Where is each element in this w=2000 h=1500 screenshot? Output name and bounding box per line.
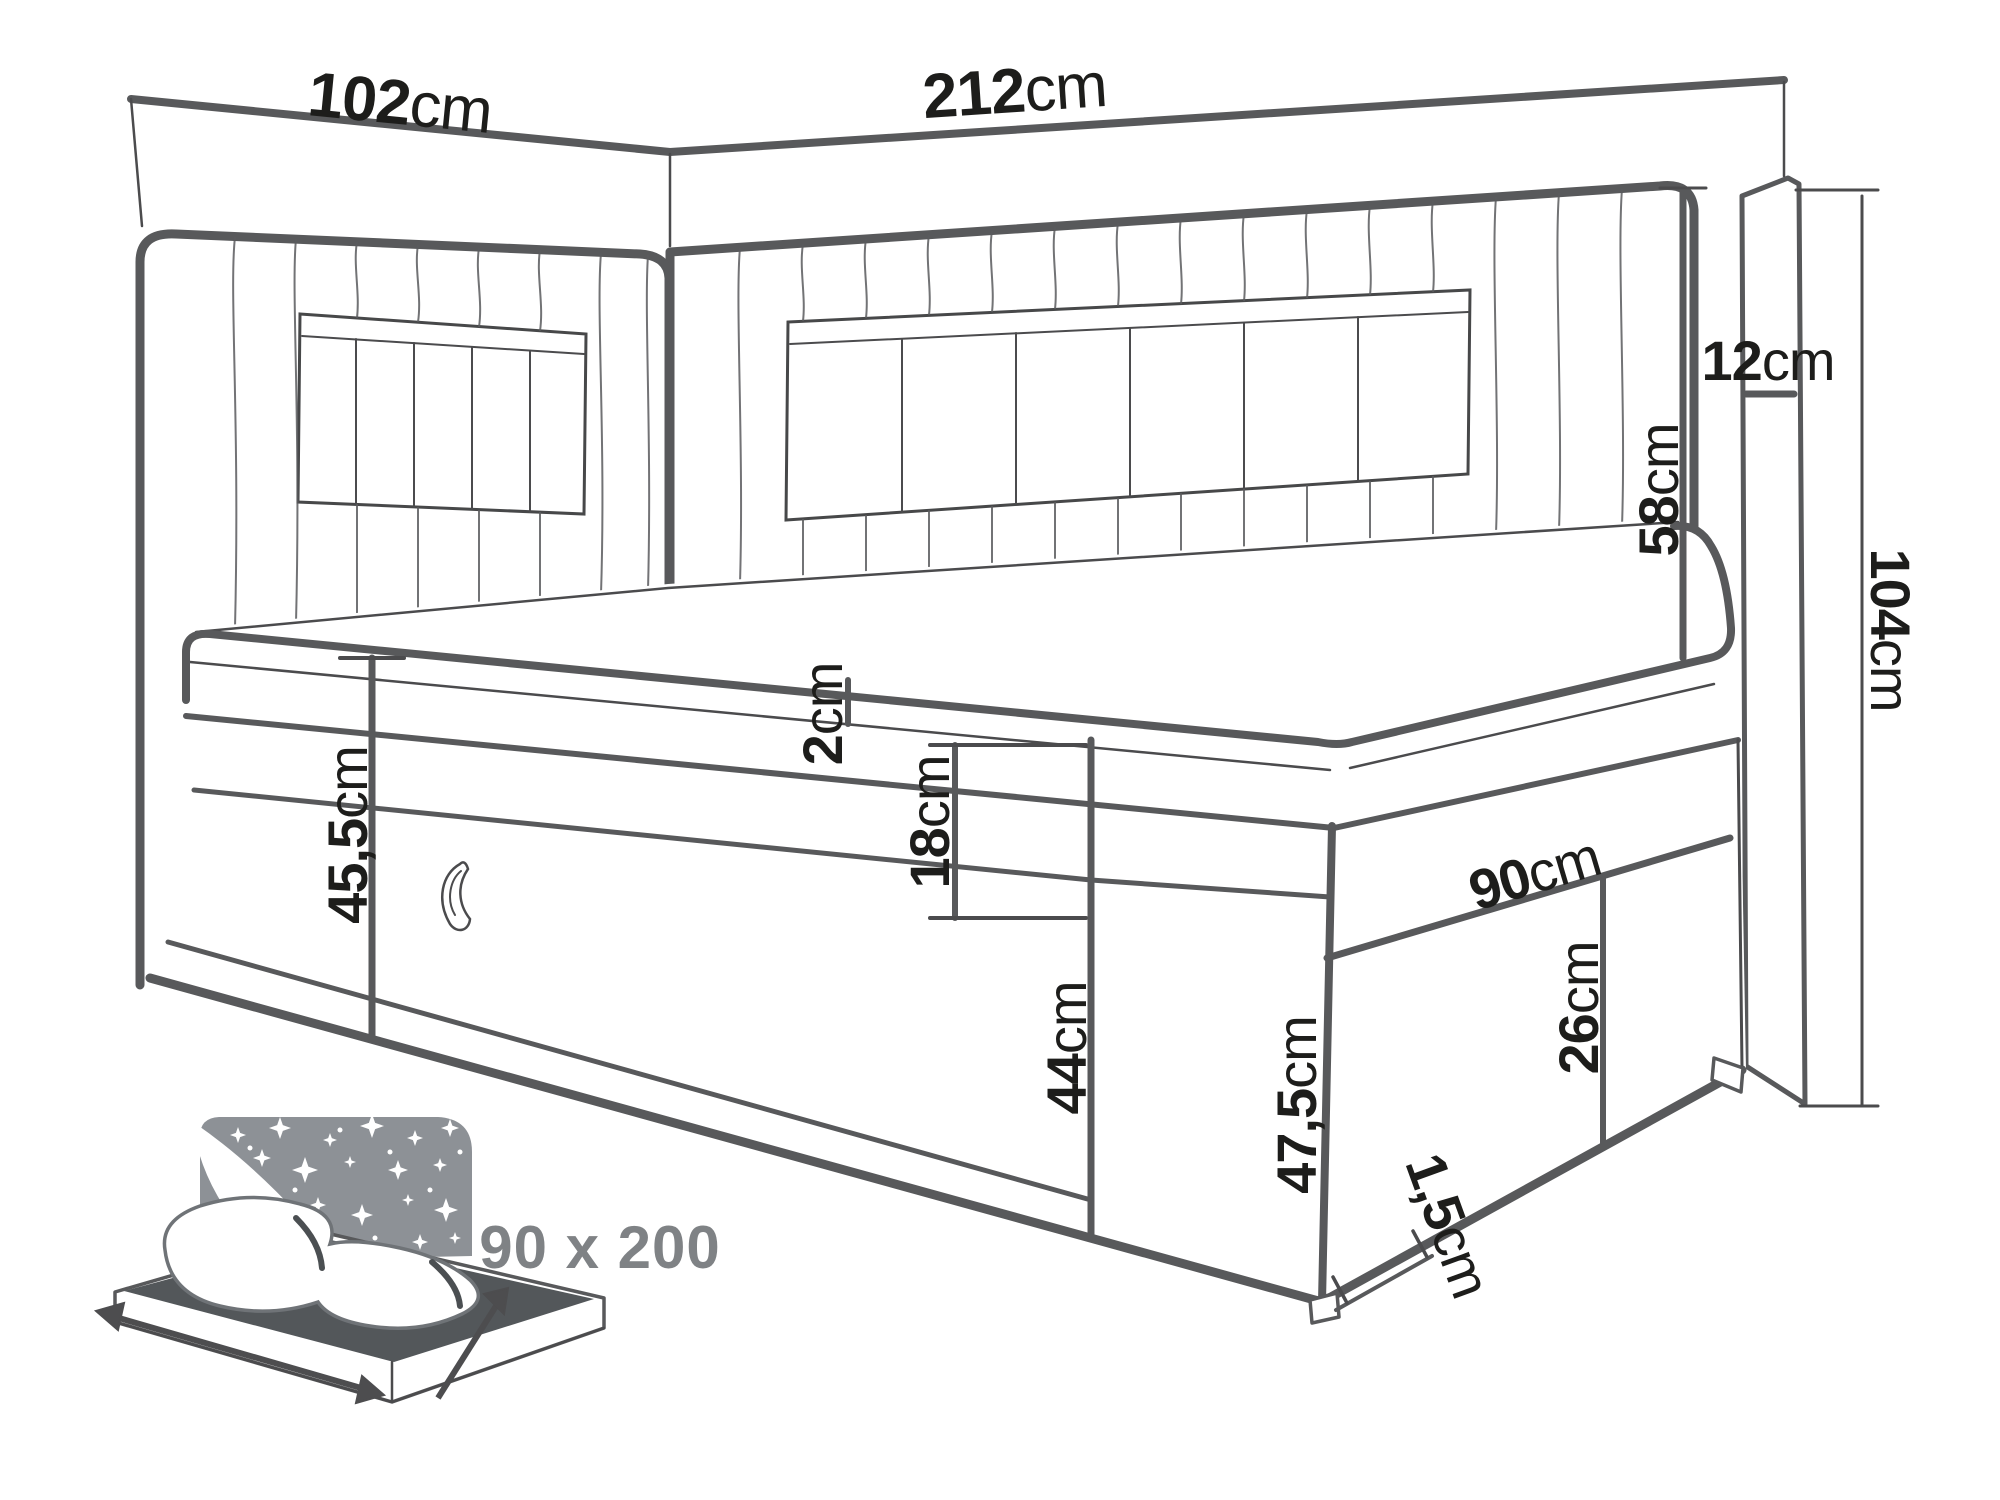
- dim-left-width: 102cm: [305, 59, 495, 147]
- dim-back-length: 212cm: [920, 50, 1108, 132]
- bed-size-badge: 90 x 200: [96, 1114, 721, 1403]
- dim-topper: 2cm: [791, 663, 854, 766]
- dim-seat-height: 45,5cm: [316, 746, 379, 924]
- bed-dimension-diagram: 102cm 212cm 12cm 58cm 104cm 45,5cm 2cm 1…: [0, 0, 2000, 1500]
- dim-total-height: 104cm: [1859, 548, 1922, 711]
- bed-size-label: 90 x 200: [479, 1214, 721, 1281]
- dim-corner-height: 47,5cm: [1265, 1016, 1328, 1194]
- right-side-panel: [1742, 178, 1805, 1104]
- left-headboard-shelf: [298, 314, 586, 514]
- dim-foot-drawer: 26cm: [1547, 942, 1610, 1075]
- corner-foot: [1310, 1293, 1339, 1323]
- dim-top-rail: 12cm: [1702, 329, 1835, 392]
- dim-base-height: 44cm: [1035, 982, 1098, 1115]
- dim-drawer-front: 18cm: [898, 756, 961, 889]
- dim-headboard-above-mattress: 58cm: [1627, 424, 1690, 557]
